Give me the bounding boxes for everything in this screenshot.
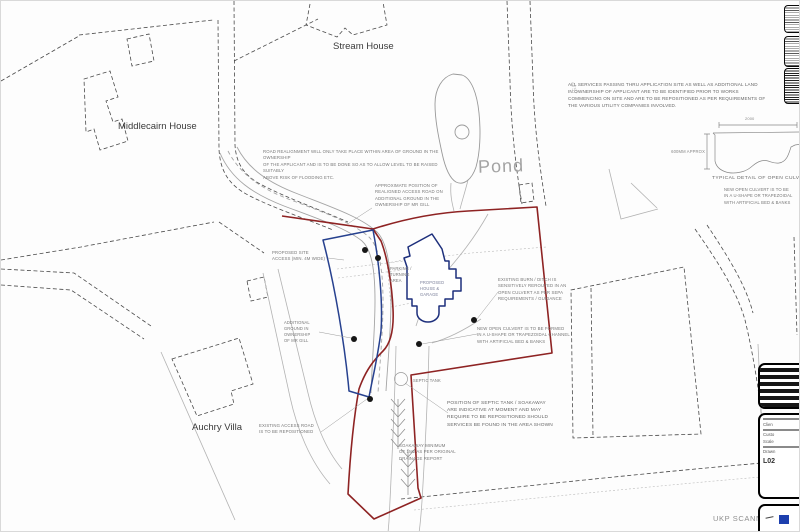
title-block-line: Clien xyxy=(763,422,800,427)
title-block-filler xyxy=(763,418,800,420)
septic-tank-label: SEPTIC TANK xyxy=(413,378,441,384)
revision-block xyxy=(758,363,800,409)
realigned-road-edge-2 xyxy=(237,147,391,391)
note-additional-ground: ADDITIONAL GROUND IN OWNERSHIP OF MR GIL… xyxy=(284,320,324,345)
boundary-continuation xyxy=(219,222,264,253)
realigned-road xyxy=(220,147,391,393)
site-boundary-red xyxy=(348,207,552,519)
edge-note-box-2 xyxy=(784,36,800,67)
east-track-1 xyxy=(695,229,765,454)
title-block: Clien Custo Scale Drawn L02 xyxy=(758,413,800,499)
east-angular-line xyxy=(609,169,658,219)
edge-note-box-3 xyxy=(784,68,800,104)
proposed-house-label: PROPOSED HOUSE & GARAGE xyxy=(420,280,458,298)
survey-dot xyxy=(362,247,368,253)
far-right-boundary xyxy=(794,237,797,335)
boundary-top-left xyxy=(79,20,213,35)
track-to-auchry-1 xyxy=(1,269,151,326)
stream-house-building xyxy=(306,2,387,37)
title-block-line: Scale xyxy=(763,439,800,444)
logo-mark xyxy=(764,511,773,519)
existing-gray-features xyxy=(161,169,763,532)
east-track-2 xyxy=(707,225,753,313)
note-services: ALL SERVICES PASSING THRU APPLICATION SI… xyxy=(568,82,800,110)
auchry-plot-edge xyxy=(161,352,235,520)
survey-dot xyxy=(375,255,381,261)
detail-ground-line xyxy=(713,132,800,133)
detail-caption: TYPICAL DETAIL OF OPEN CULVERT xyxy=(712,175,800,182)
title-block-filler xyxy=(763,429,800,431)
realigned-road-edge-1 xyxy=(220,153,375,393)
note-new-culvert: NEW OPEN CULVERT IS TO BE FORMED IN A U-… xyxy=(477,326,573,345)
middlecairn-south-boundary xyxy=(1,222,214,260)
detail-channel-section xyxy=(713,133,800,173)
east-angular-line-2 xyxy=(631,183,657,208)
note-realigned-access: APPROXIMATE POSITION OF REALIGNED ACCESS… xyxy=(375,183,463,209)
note-existing-burn: EXISTING BURN / DITCH IS SENSITIVELY RER… xyxy=(498,277,586,303)
survey-dot xyxy=(351,336,357,342)
south-faint-boundary xyxy=(414,477,761,510)
site-plan-scan: Stream House Middlecairn House Auchry Vi… xyxy=(0,0,800,532)
detail-dim-width-line xyxy=(719,122,797,128)
track-south-1 xyxy=(388,346,396,532)
south-long-boundary xyxy=(401,460,798,499)
survey-dot xyxy=(367,396,373,402)
pond-label: Pond xyxy=(478,155,525,178)
note-parking: PARKING / TURNING AREA xyxy=(390,266,420,284)
note-road-realignment: ROAD REALIGNMENT WILL ONLY TAKE PLACE WI… xyxy=(263,149,449,181)
logo-square xyxy=(779,515,789,524)
track-to-auchry-2 xyxy=(1,285,144,339)
existing-access-road-b xyxy=(263,273,330,484)
pond-road-edge-right xyxy=(530,1,546,206)
logo-block xyxy=(758,504,800,532)
realigned-road-centerline xyxy=(228,151,383,393)
middlecairn-house-label: Middlecairn House xyxy=(118,121,197,132)
existing-boundaries xyxy=(1,1,798,499)
detail-note: NEW OPEN CULVERT IS TO BE IN A U-SHAPE O… xyxy=(724,187,792,206)
note-existing-access: EXISTING ACCESS ROAD IS TO BE REPOSITION… xyxy=(259,423,331,436)
title-block-line: Drawn xyxy=(763,449,800,454)
detail-dim-width: 2000 xyxy=(745,116,754,122)
east-field-inner-line xyxy=(591,288,593,437)
note-proposed-access: PROPOSED SITE ACCESS (MIN. 4M WIDE) xyxy=(272,250,334,263)
small-structure xyxy=(519,183,534,203)
middlecairn-building xyxy=(84,71,128,150)
title-block-line: Custo xyxy=(763,432,800,437)
title-block-filler xyxy=(763,446,800,448)
boundary-left-diagonal xyxy=(1,36,79,81)
detail-dim-depth: 600MM APPROX xyxy=(659,149,705,155)
culvert-detail-drawing xyxy=(704,122,800,173)
stream-house-label: Stream House xyxy=(333,41,394,52)
east-field-boundary xyxy=(571,267,701,438)
note-soakaway: SOAKAWAY MINIMUM OF 1M2 AS PER ORIGINAL … xyxy=(399,443,475,462)
survey-dot xyxy=(416,341,422,347)
site-boundary-red-spur xyxy=(282,216,373,229)
existing-access-road-a xyxy=(278,269,342,469)
note-septic-position: POSITION OF SEPTIC TANK / SOAKAWAY ARE I… xyxy=(447,400,583,429)
pond-island xyxy=(455,125,469,139)
road-edge-right xyxy=(234,1,348,222)
drawing-number: L02 xyxy=(763,458,800,465)
stream-house-boundary xyxy=(234,19,318,61)
middlecairn-outbuilding xyxy=(127,34,154,66)
edge-note-box-1 xyxy=(784,5,800,33)
survey-dot xyxy=(471,317,477,323)
auchry-villa-label: Auchry Villa xyxy=(192,422,242,433)
